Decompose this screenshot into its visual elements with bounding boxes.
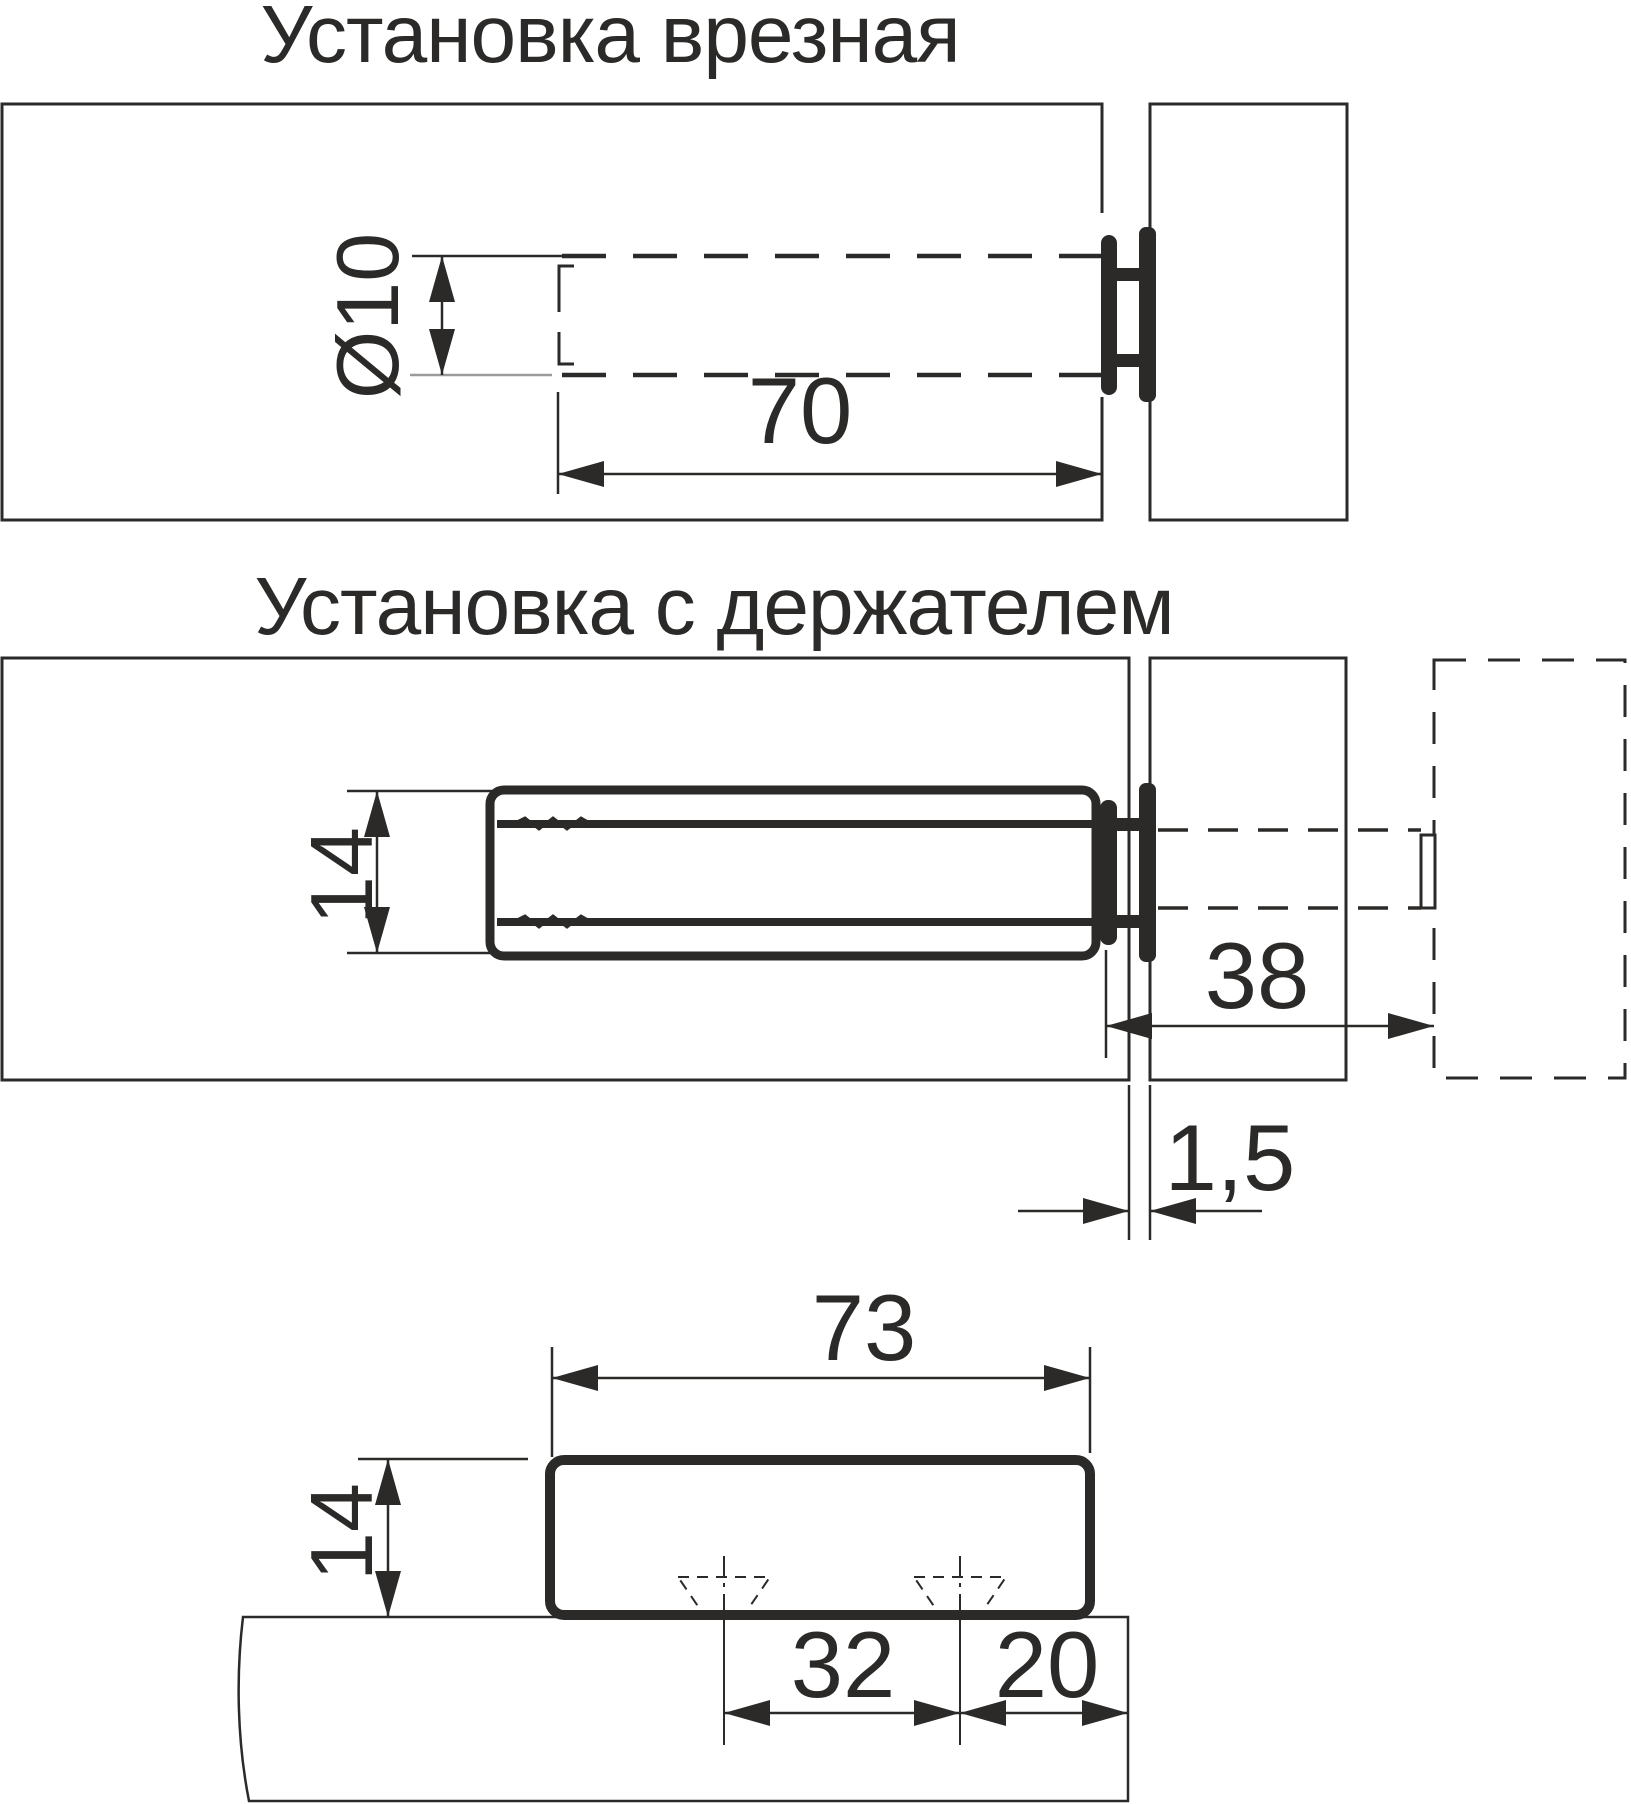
label-screw-spacing: 32 (791, 1612, 896, 1717)
latch-body (550, 1460, 1090, 1615)
diagram-latch-side-view: 73 14 32 20 (239, 1275, 1128, 1801)
plate-link-bottom (1108, 915, 1148, 928)
label-body-height: 14 (292, 827, 391, 925)
plate-link-top (1108, 268, 1148, 281)
dimension-side-height: 14 (292, 1459, 528, 1617)
counter-plate (1421, 835, 1435, 908)
label-hole-depth: 70 (748, 358, 853, 463)
door-panel-dashed (1434, 660, 1625, 1078)
dimension-door-gap: 1,5 (1018, 1085, 1295, 1240)
arrow-right-icon (1388, 1013, 1434, 1039)
cabinet-panel (2, 104, 1102, 520)
arrow-right-icon (1083, 1198, 1129, 1224)
diagram-mortise-installation: Установка врезная Ø10 70 (2, 0, 1347, 520)
latch-body-group (490, 790, 1096, 956)
dimension-body-length: 73 (552, 1275, 1090, 1457)
arrow-right-icon (1044, 1365, 1090, 1391)
diagram-holder-installation: Установка с держателем 38 (2, 561, 1625, 1240)
latch-head (1101, 227, 1156, 402)
plate-link-top (1108, 818, 1148, 831)
door-panel (1150, 104, 1347, 520)
label-body-length: 73 (812, 1275, 917, 1380)
label-edge-offset: 20 (995, 1612, 1100, 1717)
label-door-gap: 1,5 (1165, 1105, 1296, 1210)
drawing-canvas: Установка врезная Ø10 70 (0, 0, 1631, 1804)
latch-body (490, 790, 1096, 956)
magnet-plate (1139, 783, 1156, 962)
plate-link-bottom (1108, 354, 1148, 367)
title-holder: Установка с держателем (254, 561, 1173, 652)
label-side-height: 14 (292, 1483, 391, 1581)
magnet-plate (1139, 227, 1156, 402)
label-protrusion: 38 (1205, 923, 1310, 1028)
technical-drawing-page: Установка врезная Ø10 70 (0, 0, 1631, 1804)
latch-tip (1101, 235, 1117, 395)
label-hole-diameter: Ø10 (318, 233, 417, 399)
arrow-left-icon (552, 1365, 598, 1391)
title-mortise: Установка врезная (260, 0, 959, 80)
